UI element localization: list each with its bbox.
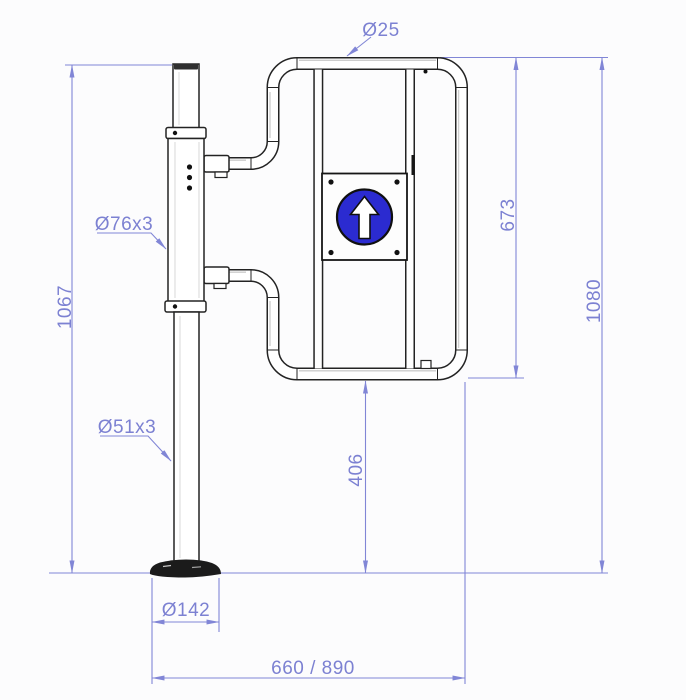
technical-drawing-canvas: 1067 673 1080 406 Ø142 660 / 890 bbox=[0, 0, 686, 700]
dim-gate-height: 673 bbox=[498, 58, 519, 379]
post-assembly bbox=[150, 64, 221, 578]
arm-clamps bbox=[204, 156, 229, 289]
base-flange bbox=[150, 560, 221, 578]
led-indicator bbox=[187, 175, 192, 180]
dim-overall-height-label: 1080 bbox=[584, 279, 605, 323]
leader-frame-tube-label: Ø25 bbox=[362, 20, 399, 41]
direction-sign bbox=[322, 174, 407, 261]
leader-post-tube-line bbox=[100, 436, 171, 461]
lower-arm-clamp-bolt-lug bbox=[214, 284, 226, 289]
upper-post-cap bbox=[174, 64, 198, 70]
sign-bolt bbox=[328, 179, 333, 184]
led-indicator bbox=[187, 164, 192, 169]
dim-base-flange-label: Ø142 bbox=[162, 600, 210, 621]
dim-overall-width: 660 / 890 bbox=[152, 658, 465, 679]
base-flange-highlight bbox=[192, 567, 201, 568]
dim-post-height: 1067 bbox=[55, 65, 76, 573]
dim-gate-height-label: 673 bbox=[498, 198, 519, 231]
lower-post-tube bbox=[174, 312, 199, 563]
upper-arm-clamp-bolt-lug bbox=[215, 172, 227, 178]
panel-tube-foot bbox=[421, 361, 431, 369]
led-indicator bbox=[187, 185, 192, 190]
lower-arm-clamp bbox=[204, 267, 229, 284]
dim-bottom-clearance: 406 bbox=[346, 381, 367, 573]
dim-overall-height: 1080 bbox=[584, 58, 605, 574]
housing-top-bolt bbox=[173, 131, 177, 135]
upper-post-tube bbox=[173, 64, 199, 129]
leader-post-tube-label: Ø51x3 bbox=[98, 417, 156, 438]
leader-post-tube: Ø51x3 bbox=[98, 417, 171, 461]
leader-housing-tube-line bbox=[97, 233, 166, 249]
sign-bolt bbox=[394, 250, 399, 255]
dim-base-flange: Ø142 bbox=[152, 600, 219, 622]
dim-bottom-clearance-label: 406 bbox=[346, 453, 367, 486]
housing-bottom-cap bbox=[165, 301, 206, 312]
leader-housing-tube-label: Ø76x3 bbox=[95, 214, 153, 235]
upper-arm-clamp bbox=[204, 156, 229, 173]
panel-tube-bolt bbox=[424, 70, 428, 74]
leader-housing-tube: Ø76x3 bbox=[95, 214, 166, 249]
housing-top-cap bbox=[166, 128, 206, 139]
housing-bottom-bolt bbox=[173, 304, 177, 308]
dimension-layer: 1067 673 1080 406 Ø142 660 / 890 bbox=[49, 20, 608, 684]
technical-drawing: 1067 673 1080 406 Ø142 660 / 890 bbox=[0, 0, 686, 700]
sign-bolt bbox=[328, 250, 333, 255]
leader-frame-tube: Ø25 bbox=[347, 20, 400, 56]
dim-post-height-label: 1067 bbox=[55, 285, 76, 329]
structure-layer bbox=[150, 57, 468, 578]
dim-overall-width-label: 660 / 890 bbox=[271, 658, 355, 679]
sign-bolt bbox=[394, 179, 399, 184]
